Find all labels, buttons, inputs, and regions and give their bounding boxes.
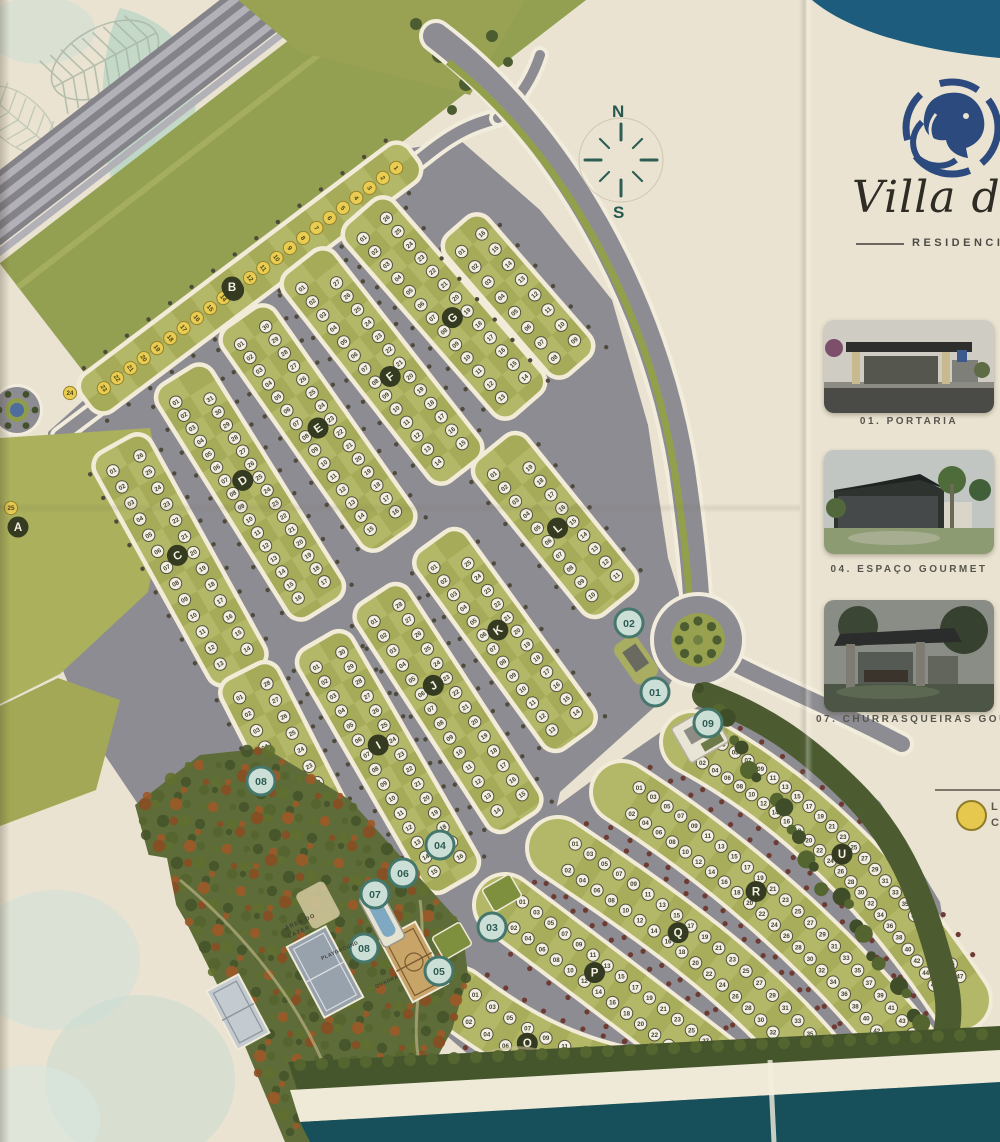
- svg-text:05: 05: [345, 721, 355, 731]
- block-A: A2425: [0, 386, 166, 826]
- svg-text:13: 13: [590, 544, 600, 554]
- svg-text:24: 24: [665, 1043, 672, 1050]
- svg-text:14: 14: [579, 530, 589, 540]
- bottom-teal-band: [300, 1082, 1000, 1142]
- amenity-markers: 01020304050607080809: [247, 609, 722, 985]
- svg-text:05: 05: [405, 287, 415, 297]
- svg-text:04: 04: [393, 273, 403, 283]
- svg-text:30: 30: [337, 648, 347, 658]
- svg-text:13: 13: [718, 843, 725, 850]
- svg-text:20: 20: [470, 717, 480, 727]
- svg-text:13: 13: [580, 1051, 587, 1058]
- svg-text:08: 08: [498, 658, 508, 668]
- svg-text:02: 02: [179, 411, 189, 421]
- svg-text:18: 18: [532, 654, 542, 664]
- svg-text:10: 10: [189, 611, 199, 621]
- brand-divider: [856, 243, 904, 245]
- svg-text:30: 30: [757, 1017, 764, 1024]
- svg-text:05: 05: [144, 531, 154, 541]
- svg-text:22: 22: [451, 688, 461, 698]
- svg-text:16: 16: [497, 346, 507, 356]
- churrasqueiras-label: 07. CHURRASQUEIRAS GOURMET: [816, 714, 1000, 725]
- svg-text:02: 02: [623, 618, 635, 630]
- svg-text:03: 03: [719, 741, 726, 748]
- svg-text:04: 04: [260, 743, 270, 753]
- svg-text:22: 22: [405, 765, 415, 775]
- svg-text:14: 14: [243, 645, 253, 655]
- svg-text:20: 20: [354, 454, 364, 464]
- svg-text:B: B: [226, 284, 241, 298]
- photo-left-edge: [0, 0, 10, 1142]
- svg-text:F: F: [384, 370, 397, 384]
- svg-text:J: J: [428, 679, 440, 693]
- svg-text:01: 01: [370, 617, 380, 627]
- svg-text:U: U: [838, 849, 846, 861]
- svg-text:30: 30: [214, 407, 224, 417]
- block-strip-E: 0102030405060708091011121314151617181920…: [208, 295, 437, 576]
- svg-text:14: 14: [520, 373, 530, 383]
- svg-text:12: 12: [412, 431, 422, 441]
- svg-text:10: 10: [682, 849, 689, 856]
- svg-text:07: 07: [536, 338, 546, 348]
- svg-text:28: 28: [230, 434, 240, 444]
- svg-text:26: 26: [679, 1053, 686, 1060]
- svg-text:06: 06: [523, 323, 533, 333]
- svg-text:09: 09: [702, 718, 714, 730]
- svg-text:13: 13: [413, 838, 423, 848]
- svg-text:28: 28: [263, 679, 273, 689]
- svg-text:03: 03: [449, 590, 459, 600]
- espaco-gourmet-label: 04. ESPAÇO GOURMET: [824, 564, 994, 575]
- svg-text:17: 17: [178, 324, 188, 334]
- amenity-marker-05: 05: [425, 957, 453, 985]
- svg-text:22: 22: [335, 428, 345, 438]
- svg-text:07: 07: [616, 871, 623, 878]
- svg-text:11: 11: [704, 833, 711, 840]
- brand-subtitle: RESIDENCI: [912, 237, 1000, 249]
- svg-text:16: 16: [294, 594, 304, 604]
- svg-text:13: 13: [269, 554, 279, 564]
- svg-text:02: 02: [465, 1019, 472, 1026]
- svg-text:06: 06: [354, 736, 364, 746]
- amenity-marker-04: 04: [426, 831, 454, 859]
- svg-text:12: 12: [636, 918, 643, 925]
- svg-text:09: 09: [757, 766, 764, 773]
- svg-text:21: 21: [125, 364, 135, 374]
- svg-text:01: 01: [236, 340, 246, 350]
- svg-text:13: 13: [517, 275, 527, 285]
- svg-text:07: 07: [561, 931, 568, 938]
- svg-text:06: 06: [417, 690, 427, 700]
- svg-text:22: 22: [706, 971, 713, 978]
- svg-text:06: 06: [153, 547, 163, 557]
- svg-text:20: 20: [330, 811, 340, 821]
- svg-text:17: 17: [320, 577, 330, 587]
- compass-north-label: N: [612, 102, 624, 122]
- main-roads: [60, 36, 902, 744]
- svg-text:24: 24: [388, 735, 398, 745]
- svg-text:18: 18: [347, 844, 357, 854]
- svg-text:05: 05: [601, 861, 608, 868]
- svg-text:11: 11: [198, 627, 208, 637]
- lion-icon: [906, 82, 998, 174]
- svg-text:28: 28: [795, 944, 802, 951]
- svg-text:12: 12: [207, 644, 217, 654]
- svg-text:19: 19: [480, 732, 490, 742]
- svg-text:16: 16: [225, 613, 235, 623]
- svg-text:34: 34: [781, 1042, 788, 1049]
- svg-text:15: 15: [618, 974, 625, 981]
- svg-text:03: 03: [252, 726, 262, 736]
- svg-text:31: 31: [206, 394, 216, 404]
- svg-text:18: 18: [372, 481, 382, 491]
- svg-text:29: 29: [222, 421, 232, 431]
- svg-text:26: 26: [135, 451, 145, 461]
- svg-text:10: 10: [388, 794, 398, 804]
- svg-text:20: 20: [746, 900, 753, 907]
- svg-text:24: 24: [405, 240, 415, 250]
- svg-text:37: 37: [866, 980, 873, 987]
- svg-text:07: 07: [426, 704, 436, 714]
- svg-text:19: 19: [152, 344, 162, 354]
- svg-text:02: 02: [244, 710, 254, 720]
- svg-text:06: 06: [544, 537, 554, 547]
- svg-text:06: 06: [350, 351, 360, 361]
- svg-text:28: 28: [693, 1064, 700, 1071]
- svg-text:12: 12: [760, 800, 767, 807]
- svg-text:14: 14: [345, 908, 355, 918]
- svg-text:22: 22: [651, 1032, 658, 1039]
- svg-text:13: 13: [497, 393, 507, 403]
- svg-text:13: 13: [483, 792, 493, 802]
- block-strip-H: 0102030405060708091011121314151617181920…: [208, 653, 409, 945]
- svg-text:01: 01: [636, 785, 643, 792]
- svg-text:03: 03: [650, 794, 657, 801]
- wooded-leisure-area: [135, 745, 560, 1142]
- svg-text:04: 04: [434, 840, 446, 852]
- svg-text:08: 08: [439, 327, 449, 337]
- svg-text:13: 13: [548, 725, 558, 735]
- svg-text:23: 23: [396, 750, 406, 760]
- svg-text:19: 19: [525, 463, 535, 473]
- svg-text:30: 30: [261, 322, 271, 332]
- svg-text:09: 09: [451, 340, 461, 350]
- pool-pavilion: [358, 888, 405, 949]
- svg-text:41: 41: [930, 937, 937, 944]
- svg-text:30: 30: [857, 890, 864, 897]
- svg-text:14: 14: [708, 869, 715, 876]
- svg-text:13: 13: [782, 784, 789, 791]
- svg-text:23: 23: [416, 253, 426, 263]
- svg-text:40: 40: [905, 946, 912, 953]
- svg-text:24: 24: [432, 659, 442, 669]
- svg-text:38: 38: [852, 1003, 859, 1010]
- svg-text:37: 37: [818, 1045, 825, 1052]
- svg-text:08: 08: [565, 564, 575, 574]
- svg-text:17: 17: [806, 803, 813, 810]
- svg-text:09: 09: [575, 941, 582, 948]
- svg-text:01: 01: [235, 693, 245, 703]
- svg-text:18: 18: [734, 890, 741, 897]
- svg-text:07: 07: [286, 792, 296, 802]
- svg-text:03: 03: [329, 692, 339, 702]
- amenity-marker-08: 08: [350, 934, 378, 962]
- entrance-roundabout: [611, 592, 746, 763]
- svg-text:24: 24: [67, 390, 74, 397]
- svg-text:08: 08: [255, 776, 267, 788]
- svg-text:10: 10: [455, 748, 465, 758]
- svg-text:09: 09: [310, 445, 320, 455]
- svg-text:14: 14: [433, 458, 443, 468]
- svg-text:05: 05: [407, 675, 417, 685]
- svg-text:46: 46: [894, 1054, 901, 1061]
- svg-text:24: 24: [363, 318, 373, 328]
- svg-text:21: 21: [715, 945, 722, 952]
- svg-text:23: 23: [374, 332, 384, 342]
- svg-text:31: 31: [882, 878, 889, 885]
- svg-text:07: 07: [362, 750, 372, 760]
- svg-text:11: 11: [528, 698, 538, 708]
- svg-text:26: 26: [371, 706, 381, 716]
- brochure-photo: A242512345678910111213141516171819202122…: [0, 0, 1000, 1142]
- paper-corner: [0, 830, 277, 1142]
- svg-text:4: 4: [352, 195, 360, 202]
- svg-text:42: 42: [873, 1028, 880, 1035]
- svg-text:02: 02: [628, 811, 635, 818]
- svg-text:09: 09: [379, 780, 389, 790]
- svg-text:19: 19: [463, 306, 473, 316]
- svg-text:08: 08: [436, 719, 446, 729]
- svg-text:33: 33: [843, 955, 850, 962]
- svg-text:11: 11: [396, 809, 406, 819]
- svg-text:30: 30: [807, 956, 814, 963]
- svg-text:E: E: [312, 422, 325, 436]
- svg-text:09: 09: [303, 825, 313, 835]
- svg-text:12: 12: [404, 823, 414, 833]
- svg-text:12: 12: [562, 1072, 569, 1079]
- svg-text:10: 10: [567, 968, 574, 975]
- svg-text:01: 01: [472, 992, 479, 999]
- svg-text:LAZER: LAZER: [287, 925, 311, 940]
- svg-text:20: 20: [805, 838, 812, 845]
- svg-text:06: 06: [724, 775, 731, 782]
- svg-text:01: 01: [297, 284, 307, 294]
- svg-text:17: 17: [632, 984, 639, 991]
- svg-text:03: 03: [188, 424, 198, 434]
- svg-text:K: K: [491, 623, 505, 638]
- svg-text:27: 27: [756, 980, 763, 987]
- svg-text:04: 04: [398, 660, 408, 670]
- svg-text:05: 05: [204, 450, 214, 460]
- map-area-labels: ÁREA DOLAZERPLAYGROUNDQUADRA: [284, 912, 400, 990]
- svg-text:ÁREA DO: ÁREA DO: [284, 912, 317, 932]
- svg-text:17: 17: [216, 596, 226, 606]
- svg-text:26: 26: [837, 868, 844, 875]
- svg-text:29: 29: [872, 867, 879, 874]
- compass-rose: [579, 118, 663, 202]
- svg-text:27: 27: [363, 692, 373, 702]
- svg-text:05: 05: [510, 308, 520, 318]
- svg-text:27: 27: [271, 696, 281, 706]
- svg-text:07: 07: [220, 476, 230, 486]
- svg-text:01: 01: [457, 247, 467, 257]
- svg-text:36: 36: [841, 991, 848, 998]
- svg-text:28: 28: [354, 677, 364, 687]
- svg-text:26: 26: [382, 213, 392, 223]
- svg-text:32: 32: [769, 1029, 776, 1036]
- highway: [0, 0, 552, 702]
- svg-text:06: 06: [655, 830, 662, 837]
- svg-text:10: 10: [748, 792, 755, 799]
- svg-text:36: 36: [886, 923, 893, 930]
- svg-text:19: 19: [363, 467, 373, 477]
- svg-text:15: 15: [372, 894, 382, 904]
- svg-text:43: 43: [899, 1018, 906, 1025]
- svg-text:17: 17: [542, 667, 552, 677]
- svg-text:45: 45: [909, 1031, 916, 1038]
- svg-text:17: 17: [546, 490, 556, 500]
- svg-text:I: I: [374, 740, 383, 752]
- svg-text:13: 13: [336, 891, 346, 901]
- svg-text:25: 25: [743, 968, 750, 975]
- svg-text:10: 10: [311, 842, 321, 852]
- svg-text:C: C: [171, 549, 184, 564]
- svg-text:19: 19: [757, 875, 764, 882]
- photo-card-churrasqueiras: [824, 600, 994, 712]
- svg-text:6: 6: [325, 215, 333, 222]
- svg-text:11: 11: [258, 264, 268, 274]
- svg-text:04: 04: [712, 767, 719, 774]
- svg-text:33: 33: [794, 1018, 801, 1025]
- svg-text:15: 15: [205, 304, 215, 314]
- compass-south-label: S: [613, 203, 624, 223]
- svg-text:25: 25: [380, 721, 390, 731]
- svg-text:04: 04: [135, 515, 145, 525]
- svg-text:18: 18: [536, 477, 546, 487]
- svg-text:05: 05: [547, 920, 554, 927]
- svg-text:27: 27: [861, 856, 868, 863]
- svg-text:16: 16: [455, 852, 465, 862]
- svg-text:19: 19: [522, 640, 532, 650]
- svg-text:24: 24: [296, 745, 306, 755]
- svg-text:11: 11: [544, 305, 554, 315]
- svg-text:21: 21: [769, 886, 776, 893]
- svg-text:07: 07: [428, 313, 438, 323]
- block-arc-O: 01020304050607080910111213141516O: [442, 972, 627, 1114]
- svg-text:34: 34: [877, 912, 884, 919]
- svg-text:15: 15: [491, 244, 501, 254]
- svg-text:24: 24: [473, 572, 483, 582]
- svg-text:PLAYGROUND: PLAYGROUND: [320, 940, 359, 962]
- svg-text:5: 5: [339, 205, 347, 212]
- svg-text:16: 16: [665, 938, 672, 945]
- svg-text:14: 14: [651, 928, 658, 935]
- svg-text:12: 12: [338, 485, 348, 495]
- svg-text:04: 04: [525, 936, 532, 943]
- svg-text:05: 05: [273, 392, 283, 402]
- svg-text:QUADRA: QUADRA: [374, 974, 399, 990]
- svg-text:32: 32: [867, 901, 874, 908]
- svg-text:9: 9: [286, 245, 294, 252]
- svg-text:05: 05: [269, 759, 279, 769]
- svg-text:04: 04: [497, 292, 507, 302]
- svg-text:27: 27: [404, 615, 414, 625]
- amenity-marker-06: 06: [389, 859, 417, 887]
- svg-text:21: 21: [322, 795, 332, 805]
- svg-text:04: 04: [264, 379, 274, 389]
- svg-text:19: 19: [701, 934, 708, 941]
- svg-text:05: 05: [469, 617, 479, 627]
- svg-text:07: 07: [524, 1026, 531, 1033]
- svg-text:26: 26: [732, 994, 739, 1001]
- svg-text:09: 09: [630, 881, 637, 888]
- svg-text:02: 02: [500, 483, 510, 493]
- block-arc-P: 0102030405060708091011121314151617181920…: [489, 880, 748, 1102]
- svg-text:11: 11: [612, 571, 622, 581]
- block-strip-G: 0102030405060708091011121314151617181920…: [331, 186, 563, 437]
- top-teal-band: [812, 0, 1000, 58]
- svg-text:08: 08: [521, 1054, 528, 1061]
- svg-text:06: 06: [282, 406, 292, 416]
- svg-text:38: 38: [804, 1068, 811, 1075]
- svg-text:21: 21: [180, 532, 190, 542]
- svg-text:03: 03: [489, 1004, 496, 1011]
- svg-text:07: 07: [488, 644, 498, 654]
- svg-text:01: 01: [359, 234, 369, 244]
- svg-text:45: 45: [948, 961, 955, 968]
- svg-text:15: 15: [794, 794, 801, 801]
- svg-text:21: 21: [660, 1006, 667, 1013]
- svg-text:24: 24: [719, 982, 726, 989]
- svg-text:08: 08: [371, 377, 381, 387]
- svg-text:12: 12: [695, 859, 702, 866]
- svg-text:03: 03: [388, 646, 398, 656]
- svg-text:10: 10: [541, 1063, 548, 1070]
- svg-text:23: 23: [674, 1017, 681, 1024]
- bottom-paper-strip: [290, 1050, 1000, 1122]
- brand-name-script: Villa de: [852, 172, 1000, 223]
- block-strip-C: 0102030405060708091011121314151617181920…: [81, 425, 289, 715]
- tree-boundary: [288, 683, 1000, 1092]
- svg-text:16: 16: [508, 775, 518, 785]
- svg-text:34: 34: [830, 979, 837, 986]
- svg-text:14: 14: [504, 260, 514, 270]
- svg-text:25: 25: [288, 729, 298, 739]
- svg-text:12: 12: [474, 777, 484, 787]
- block-arc-Q: 0102030405060708091011121314151617181920…: [544, 821, 838, 1077]
- block-strip: 01020304050607080910111213141516: [431, 203, 610, 394]
- svg-text:12: 12: [328, 875, 338, 885]
- svg-text:09: 09: [508, 671, 518, 681]
- svg-text:07: 07: [292, 419, 302, 429]
- svg-text:R: R: [752, 886, 761, 898]
- svg-text:08: 08: [669, 839, 676, 846]
- svg-text:11: 11: [474, 366, 484, 376]
- svg-text:42: 42: [913, 958, 920, 965]
- svg-text:11: 11: [329, 472, 339, 482]
- svg-text:15: 15: [234, 629, 244, 639]
- svg-text:02: 02: [379, 631, 389, 641]
- svg-text:04: 04: [196, 437, 206, 447]
- svg-text:35: 35: [902, 901, 909, 908]
- block-strip-I: 0102030405060708091011121314151617181920…: [285, 622, 495, 910]
- svg-text:06: 06: [502, 1043, 509, 1050]
- svg-text:01: 01: [649, 687, 661, 699]
- legend-text-line1: L: [991, 800, 998, 815]
- svg-text:25: 25: [144, 468, 154, 478]
- svg-text:16: 16: [192, 314, 202, 324]
- gatehouse: [671, 707, 729, 764]
